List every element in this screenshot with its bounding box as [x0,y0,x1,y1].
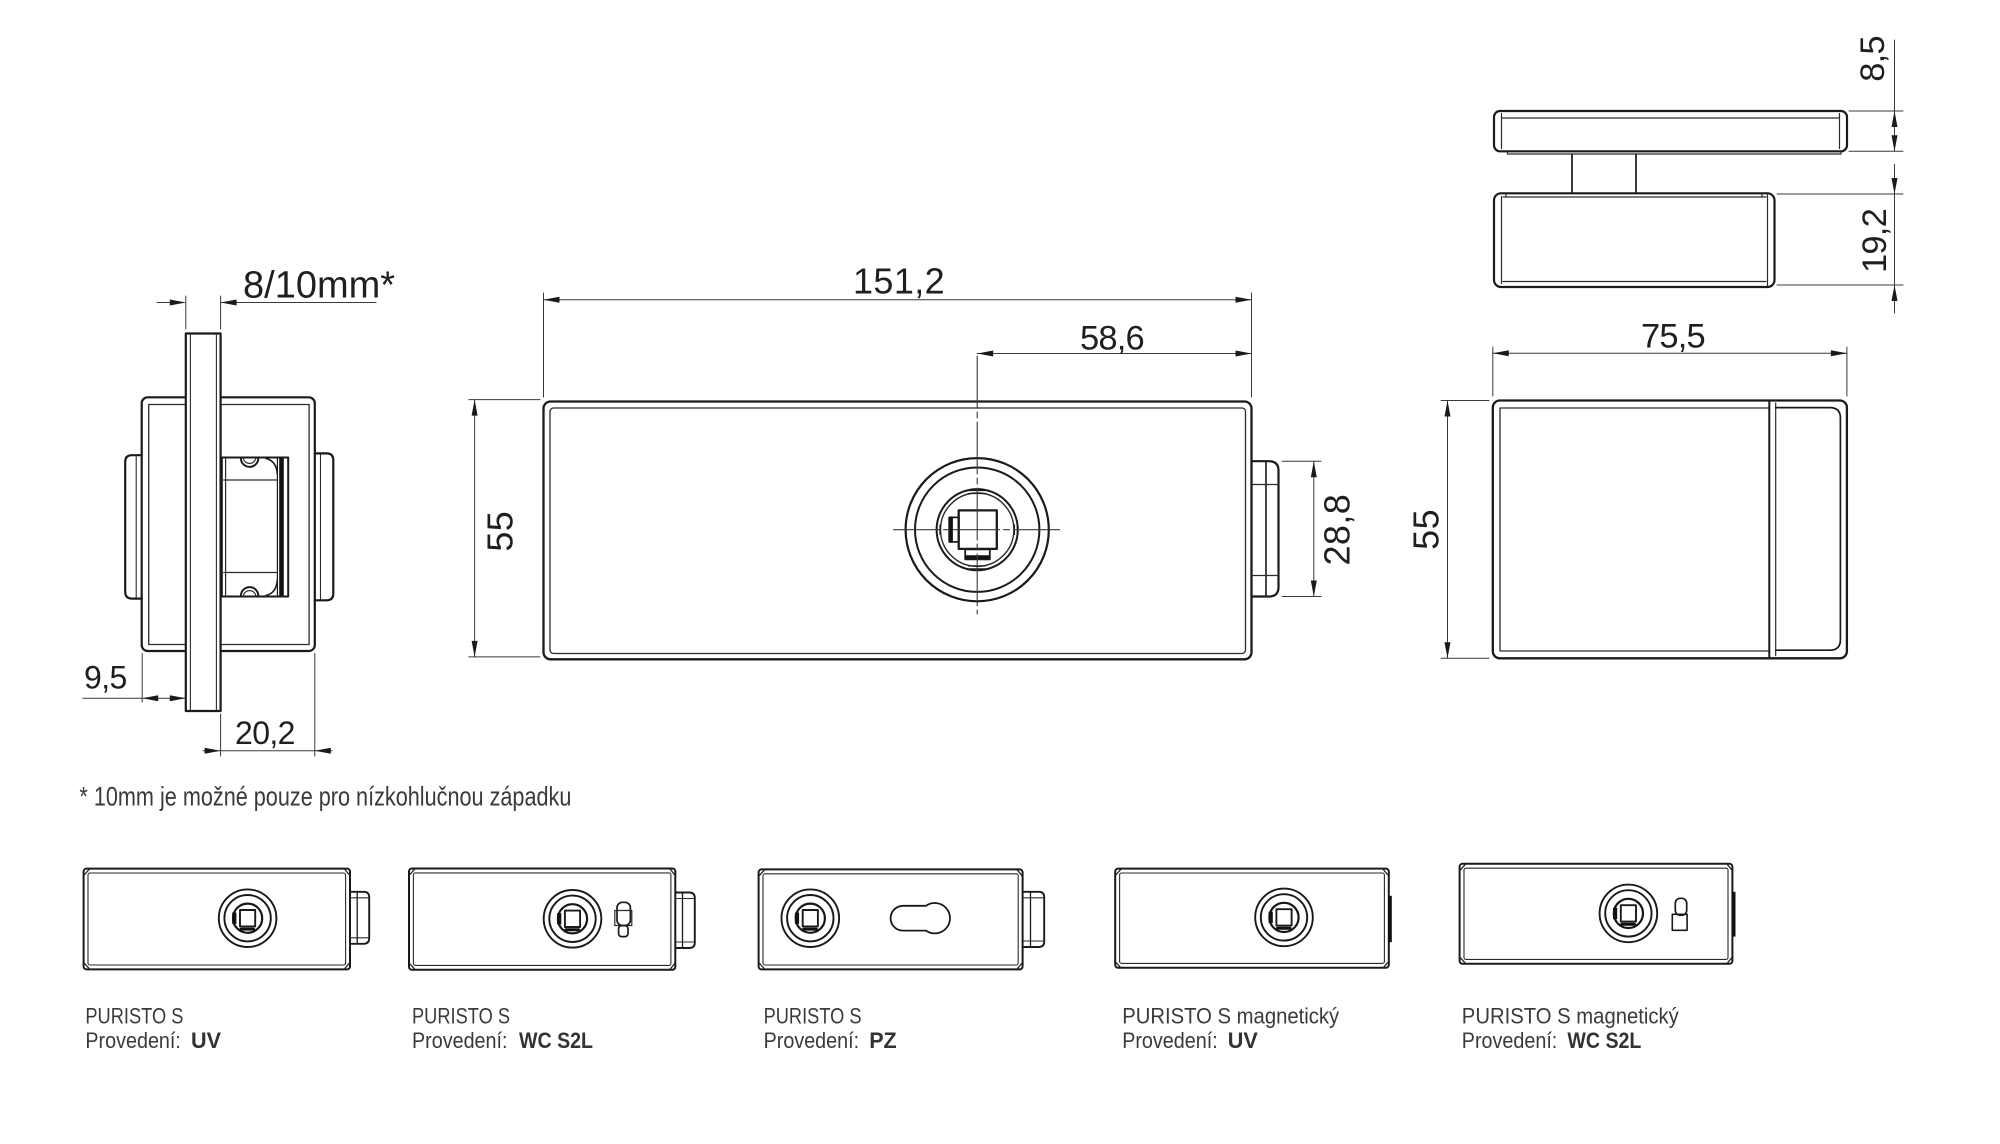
svg-text:PURISTO S: PURISTO S [764,1004,862,1029]
svg-text:PZ: PZ [869,1028,897,1053]
svg-text:55: 55 [1406,509,1447,550]
svg-text:Provedení:: Provedení: [85,1028,180,1053]
svg-text:PURISTO S magnetický: PURISTO S magnetický [1462,1004,1680,1029]
svg-text:75,5: 75,5 [1641,318,1705,356]
svg-text:9,5: 9,5 [84,660,127,696]
svg-text:PURISTO S: PURISTO S [85,1004,183,1029]
svg-text:UV: UV [191,1028,221,1053]
svg-text:WC S2L: WC S2L [1567,1028,1641,1053]
svg-text:55: 55 [480,511,521,552]
svg-text:UV: UV [1228,1028,1258,1053]
svg-text:PURISTO S: PURISTO S [412,1004,510,1029]
svg-text:8,5: 8,5 [1854,36,1892,82]
svg-text:* 10mm je možné pouze pro nízk: * 10mm je možné pouze pro nízkohlučnou z… [79,782,571,812]
svg-text:PURISTO S magnetický: PURISTO S magnetický [1122,1004,1340,1029]
svg-text:Provedení:: Provedení: [1122,1028,1218,1053]
svg-text:Provedení:: Provedení: [764,1028,860,1053]
svg-text:8/10mm*: 8/10mm* [243,265,395,307]
svg-text:Provedení:: Provedení: [1462,1028,1558,1053]
svg-text:151,2: 151,2 [853,261,945,302]
svg-text:19,2: 19,2 [1856,209,1894,273]
svg-text:WC S2L: WC S2L [519,1028,593,1053]
svg-text:28,8: 28,8 [1317,494,1358,566]
svg-text:Provedení:: Provedení: [412,1028,508,1053]
svg-text:20,2: 20,2 [235,715,295,751]
svg-text:58,6: 58,6 [1080,320,1144,358]
